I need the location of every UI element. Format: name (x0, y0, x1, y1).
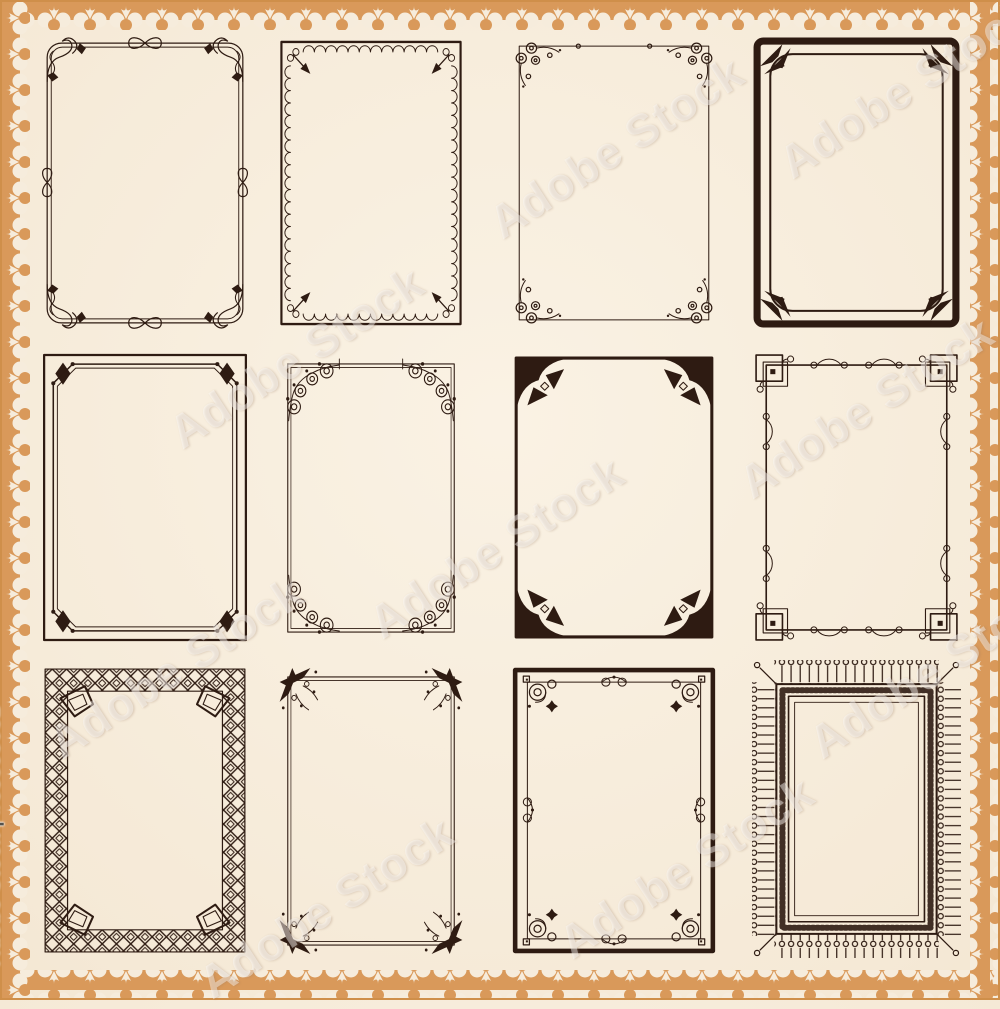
frame-12-graphic (750, 658, 963, 960)
frame-9-graphic (38, 662, 252, 959)
frame-2-graphic (276, 36, 466, 330)
frame-8-graphic (750, 349, 963, 646)
frame-5-graphic (38, 349, 252, 646)
frame-3-spiral-corners (507, 34, 721, 332)
frame-4-graphic (750, 34, 963, 331)
frame-4-art-deco (750, 34, 963, 331)
frame-1-graphic (38, 34, 252, 332)
frame-6-floral-scroll (276, 351, 466, 645)
frame-6-graphic (276, 351, 466, 645)
frame-9-celtic-knot (38, 662, 252, 959)
frame-2-scallop-arrows (276, 36, 466, 330)
frame-5-octagon-fleur (38, 349, 252, 646)
frame-10-graphic (276, 664, 466, 958)
stock-image-canvas: { "artwork": { "type": "vector-frame-set… (0, 0, 1000, 1000)
frame-3-graphic (507, 34, 721, 332)
frame-10-winged-corners (276, 664, 466, 958)
frame-8-square-knot-swirls (750, 349, 963, 646)
frame-7-graphic (507, 349, 721, 646)
frame-11-graphic (507, 662, 721, 959)
stock-credit-text: Adobe Stock | #63598082 (0, 706, 5, 966)
frame-12-pin-fringe (750, 658, 963, 960)
frame-1-loop-flourish (38, 34, 252, 332)
frame-7-solid-corner-ribbons (507, 349, 721, 646)
frame-11-spiral-medallions (507, 662, 721, 959)
